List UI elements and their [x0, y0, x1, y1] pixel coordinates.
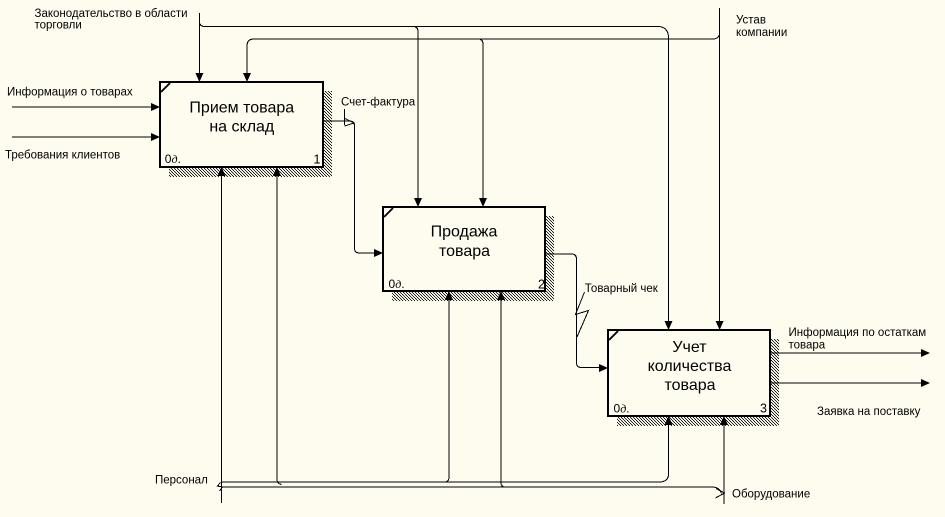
- svg-text:Требования клиентов: Требования клиентов: [5, 150, 120, 162]
- svg-text:0д.: 0д.: [389, 277, 405, 291]
- svg-text:товара: товара: [439, 243, 490, 260]
- svg-text:Информация по остаткам: Информация по остаткам: [789, 327, 927, 339]
- svg-text:3: 3: [760, 402, 767, 416]
- svg-text:Счет-фактура: Счет-фактура: [341, 97, 416, 109]
- svg-text:Товарный чек: Товарный чек: [585, 283, 659, 295]
- svg-text:Учет: Учет: [672, 339, 707, 356]
- svg-text:Заявка на поставку: Заявка на поставку: [817, 406, 921, 418]
- svg-text:0д.: 0д.: [614, 402, 630, 416]
- svg-text:0д.: 0д.: [165, 152, 181, 166]
- svg-text:на склад: на склад: [209, 118, 275, 135]
- svg-text:1: 1: [314, 153, 321, 167]
- svg-text:компании: компании: [736, 27, 787, 39]
- svg-text:Прием товара: Прием товара: [189, 99, 294, 116]
- svg-text:торговли: торговли: [35, 20, 82, 32]
- svg-text:2: 2: [538, 278, 545, 292]
- svg-text:Устав: Устав: [736, 14, 766, 26]
- svg-text:Оборудование: Оборудование: [732, 489, 810, 501]
- svg-text:товара: товара: [789, 339, 826, 351]
- svg-text:Персонал: Персонал: [155, 475, 208, 487]
- svg-text:Законодательство в области: Законодательство в области: [35, 8, 188, 20]
- svg-text:Информация о товарах: Информация о товарах: [7, 87, 133, 99]
- svg-text:количества: количества: [648, 358, 732, 375]
- svg-text:товара: товара: [664, 377, 715, 394]
- svg-text:Продажа: Продажа: [431, 224, 498, 241]
